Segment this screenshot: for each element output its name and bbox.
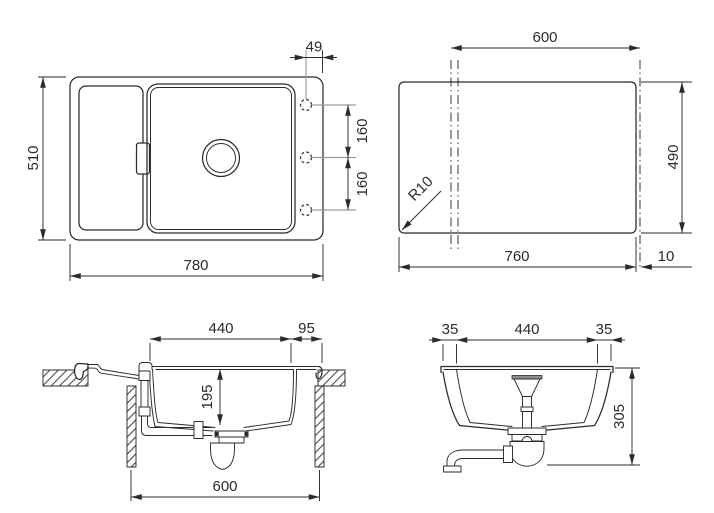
- drain-hole-outer: [203, 140, 240, 177]
- dim-label-95: 95: [298, 320, 315, 337]
- dim-label-510: 510: [25, 145, 42, 170]
- technical-drawing-svg: 49 160 160 510 780: [0, 0, 714, 513]
- siphon-trap: [510, 442, 544, 467]
- dim-label-600-side: 600: [212, 478, 237, 495]
- dim-305: 305: [547, 368, 640, 465]
- dim-label-10: 10: [658, 248, 675, 265]
- siphon-trap: [211, 443, 235, 469]
- cutout-outline: [399, 82, 636, 233]
- dim-195: 195: [199, 369, 220, 425]
- flange-seal-right: [245, 432, 248, 436]
- flange-seal-left: [216, 432, 219, 436]
- pipe-end-flange: [444, 466, 462, 472]
- plan-view: 49 160 160 510 780: [25, 39, 371, 282]
- dim-label-305: 305: [611, 404, 628, 429]
- overflow-joint: [139, 407, 150, 416]
- dim-label-35-left: 35: [442, 321, 459, 338]
- pipe-nut: [504, 446, 513, 463]
- dim-490: 490: [641, 82, 692, 233]
- tap-hole-bottom: [301, 205, 312, 216]
- drainer-surface-bottom: [87, 368, 139, 379]
- drain-flange-upper: [508, 428, 546, 435]
- dim-10: 10: [641, 248, 692, 267]
- sink-installation-drawing: 49 160 160 510 780: [0, 0, 714, 513]
- main-bowl-outer: [147, 84, 295, 233]
- front-section-view: 35 440 35 305: [429, 321, 640, 472]
- dim-label-440-front: 440: [514, 321, 539, 338]
- overflow-funnel: [514, 379, 540, 397]
- dim-chain-front: 35 440 35: [429, 321, 625, 364]
- radius-callout: R10: [402, 173, 441, 230]
- dim-440-side: 440: [150, 320, 291, 363]
- dim-510: 510: [25, 77, 66, 240]
- main-bowl-inner: [151, 88, 292, 230]
- dim-780: 780: [70, 244, 323, 281]
- dim-label-490: 490: [665, 144, 682, 169]
- cutout-view: 600 490 760 10 R10: [399, 29, 692, 272]
- pipe-nut: [194, 422, 203, 439]
- side-section-view: 440 95 195 600: [43, 320, 345, 501]
- drain-flange-lower: [219, 437, 244, 443]
- tap-hole-middle: [301, 152, 312, 163]
- dim-label-160-top: 160: [354, 118, 371, 143]
- dim-95: 95: [291, 320, 322, 363]
- overflow-pipe: [523, 397, 532, 429]
- bowl-outer-wall: [150, 370, 297, 432]
- dim-label-600: 600: [532, 29, 557, 46]
- drain-flange-upper: [215, 431, 248, 437]
- dim-600: 600: [451, 29, 640, 48]
- dim-600-side: 600: [131, 470, 320, 501]
- drainer-board: [79, 86, 143, 230]
- bowl-inner-wall: [153, 370, 294, 428]
- dim-label-760: 760: [504, 248, 529, 265]
- overflow-cap: [512, 376, 542, 380]
- dim-label-780: 780: [183, 257, 208, 274]
- dim-label-160-bottom: 160: [354, 171, 371, 196]
- cabinet-wall-right: [315, 386, 324, 467]
- drainer-surface-top: [87, 365, 139, 376]
- dim-label-49: 49: [306, 39, 323, 56]
- fastening-clip-body: [141, 381, 148, 408]
- dim-label-195: 195: [199, 384, 216, 409]
- dim-760: 760: [399, 237, 636, 272]
- tap-hole-top: [301, 100, 312, 111]
- dim-label-440: 440: [208, 320, 233, 337]
- dim-label-35-right: 35: [596, 321, 613, 338]
- overflow-pipe-collar: [521, 407, 533, 412]
- overflow-elbow: [142, 416, 153, 436]
- fastening-clip-head: [139, 371, 150, 381]
- cabinet-wall-left: [127, 386, 136, 467]
- sink-outer-edge: [70, 77, 323, 240]
- dim-49: 49: [290, 39, 337, 74]
- outlet-pipe: [447, 450, 504, 466]
- drain-hole-inner: [207, 144, 236, 173]
